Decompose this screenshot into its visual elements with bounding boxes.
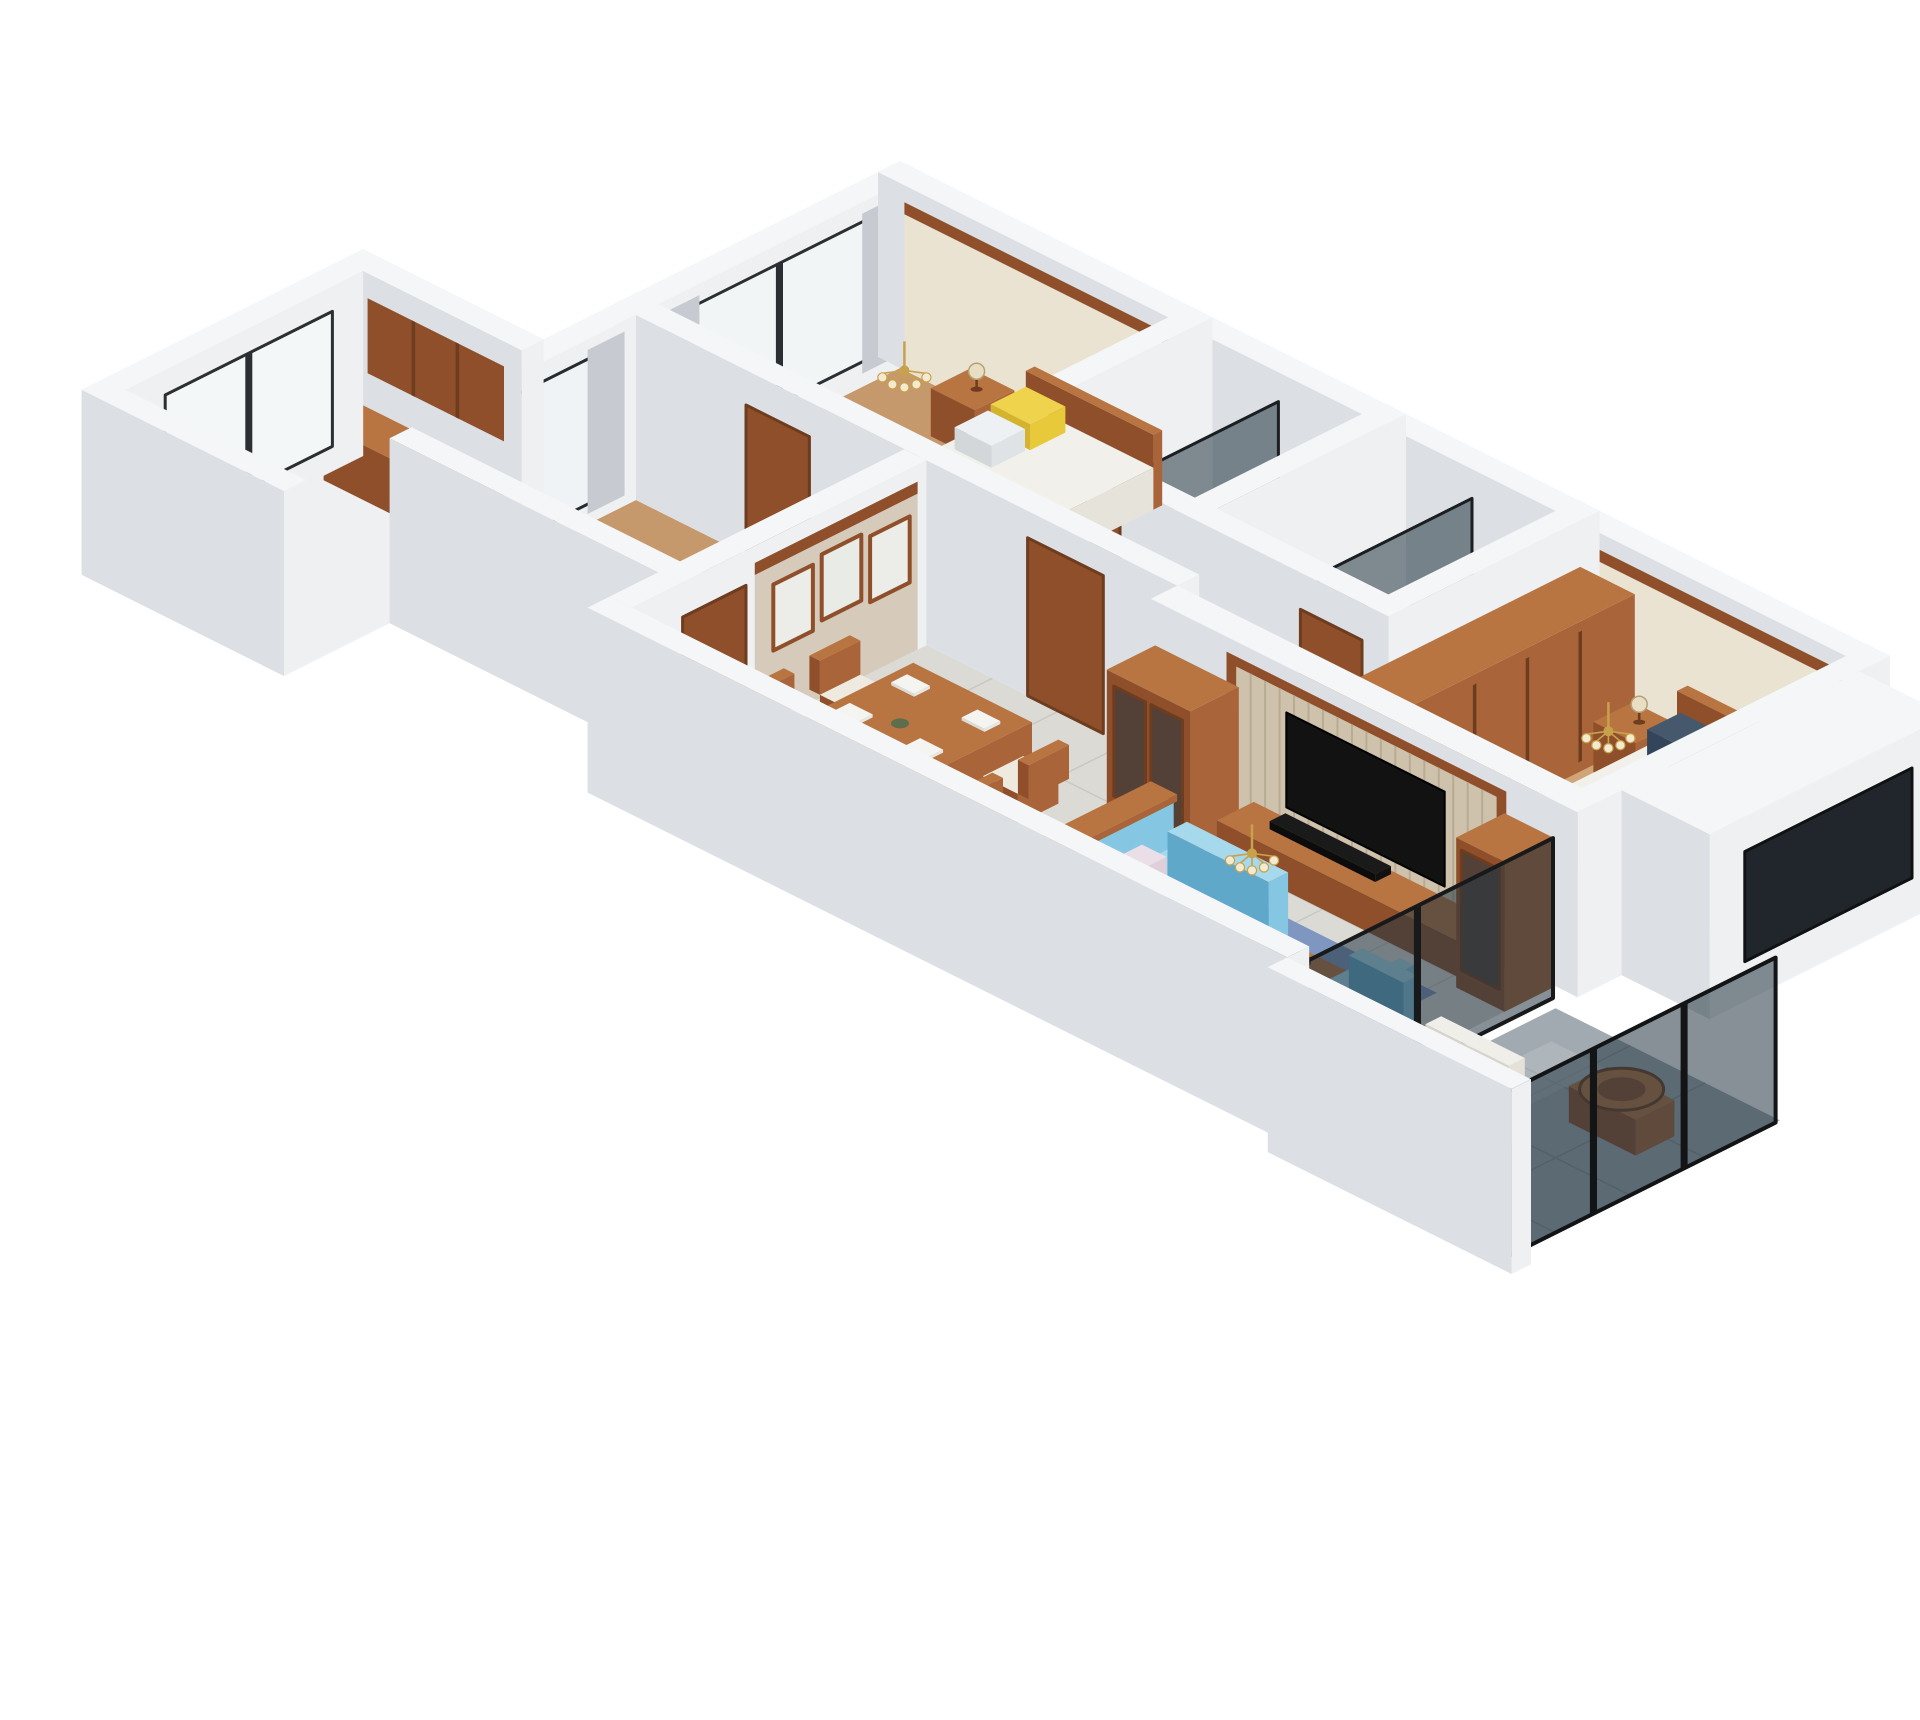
kitchen-upper-seam-1	[412, 320, 416, 397]
second-curtain-left	[588, 332, 625, 515]
wall-tv-east-face	[1578, 799, 1604, 997]
kitchen-upper-seam-2	[456, 342, 460, 419]
balcony-window-mullion-2	[1590, 1047, 1597, 1216]
apartment-3d-floorplan: 3D isometric cutaway rendering of a furn…	[40, 16, 1920, 1704]
wardrobe-door-seam-1	[1579, 631, 1583, 763]
wall-kitchen-south-east-face	[284, 480, 306, 676]
wall-balcony-south-east-face	[1512, 1079, 1531, 1274]
balcony-window-mullion-1	[1681, 1002, 1688, 1171]
floorplan-scene: 3D isometric cutaway rendering of a furn…	[40, 16, 1920, 1704]
dining-chair-1-back-south-face	[809, 656, 820, 695]
dining-chair-3-back-south-face	[1018, 760, 1029, 799]
dining-centerpiece	[891, 718, 909, 728]
guest-bed-headboard-east-face	[1153, 430, 1162, 509]
